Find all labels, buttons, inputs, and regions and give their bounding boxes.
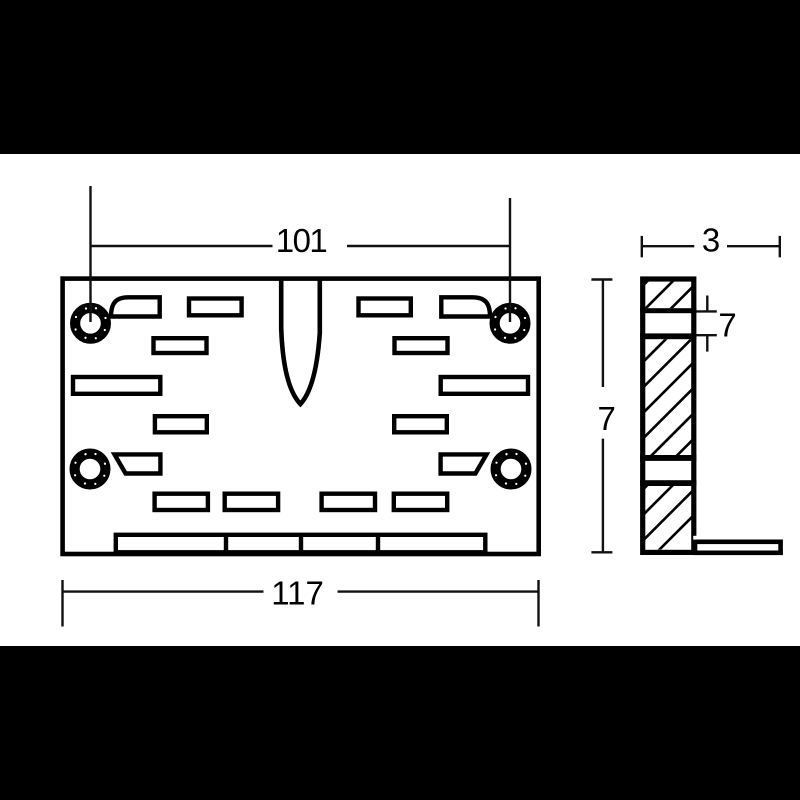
svg-text:7: 7	[598, 400, 616, 437]
svg-text:3: 3	[702, 222, 720, 259]
svg-text:117: 117	[271, 575, 324, 612]
svg-text:7: 7	[718, 307, 736, 344]
svg-text:101: 101	[276, 222, 327, 259]
